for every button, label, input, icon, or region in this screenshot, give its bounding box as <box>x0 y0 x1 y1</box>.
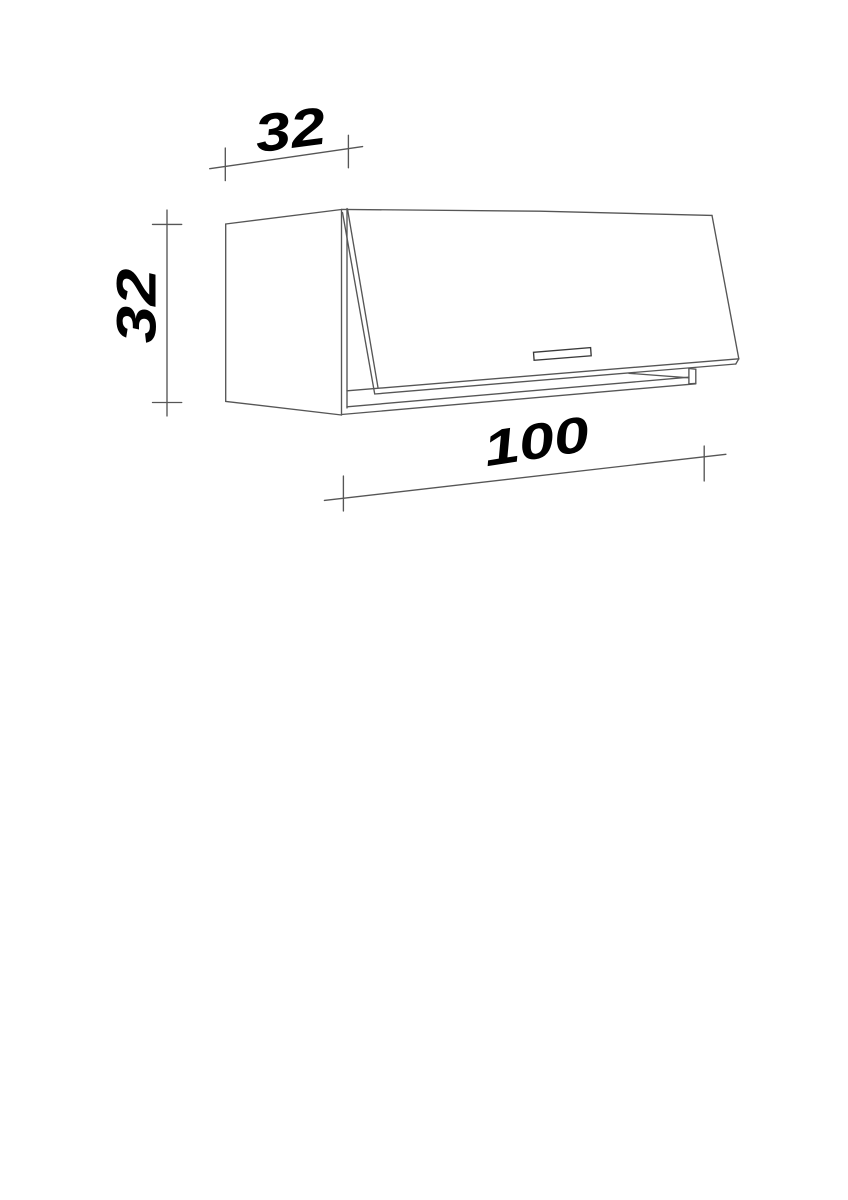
svg-text:32: 32 <box>251 97 329 165</box>
svg-text:32: 32 <box>106 269 168 344</box>
svg-text:100: 100 <box>480 406 593 477</box>
